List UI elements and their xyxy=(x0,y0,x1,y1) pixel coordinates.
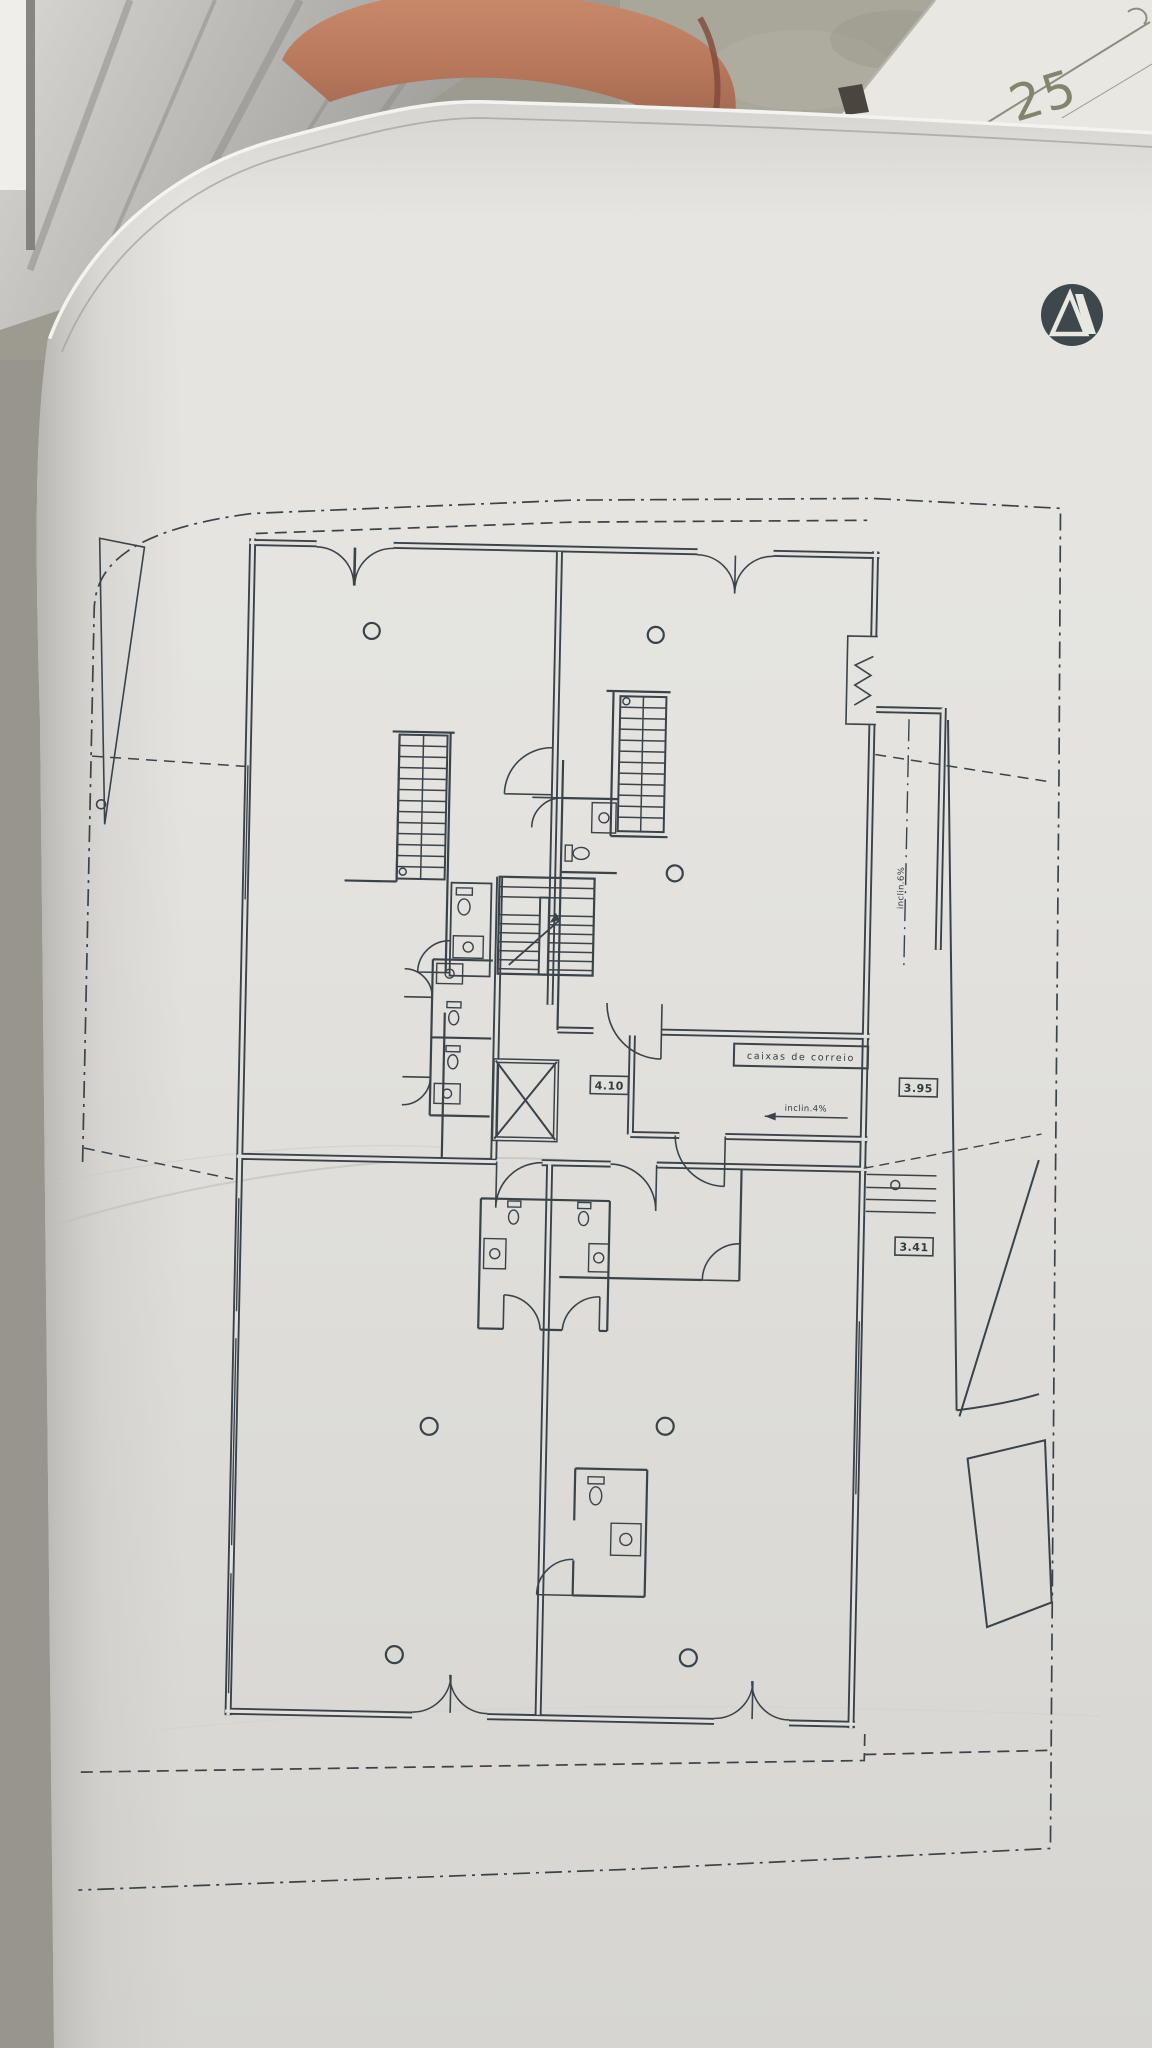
dim-label-341: 3.41 xyxy=(899,1241,928,1255)
paper-sheet xyxy=(36,90,1152,2048)
dim-label-395: 3.95 xyxy=(904,1082,933,1096)
scene-canvas: 25 xyxy=(0,0,1152,2048)
paper-surface xyxy=(37,100,1152,2048)
window-seam xyxy=(26,0,35,250)
photo-of-floor-plan: 25 xyxy=(0,0,1152,2048)
architect-logo-icon xyxy=(1041,284,1103,346)
dim-label-410: 4.10 xyxy=(595,1079,624,1093)
slope-label-corridor: inclin.4% xyxy=(785,1104,828,1115)
window-sill-highlight xyxy=(0,0,26,190)
mailbox-label: caixas de correio xyxy=(747,1051,855,1064)
